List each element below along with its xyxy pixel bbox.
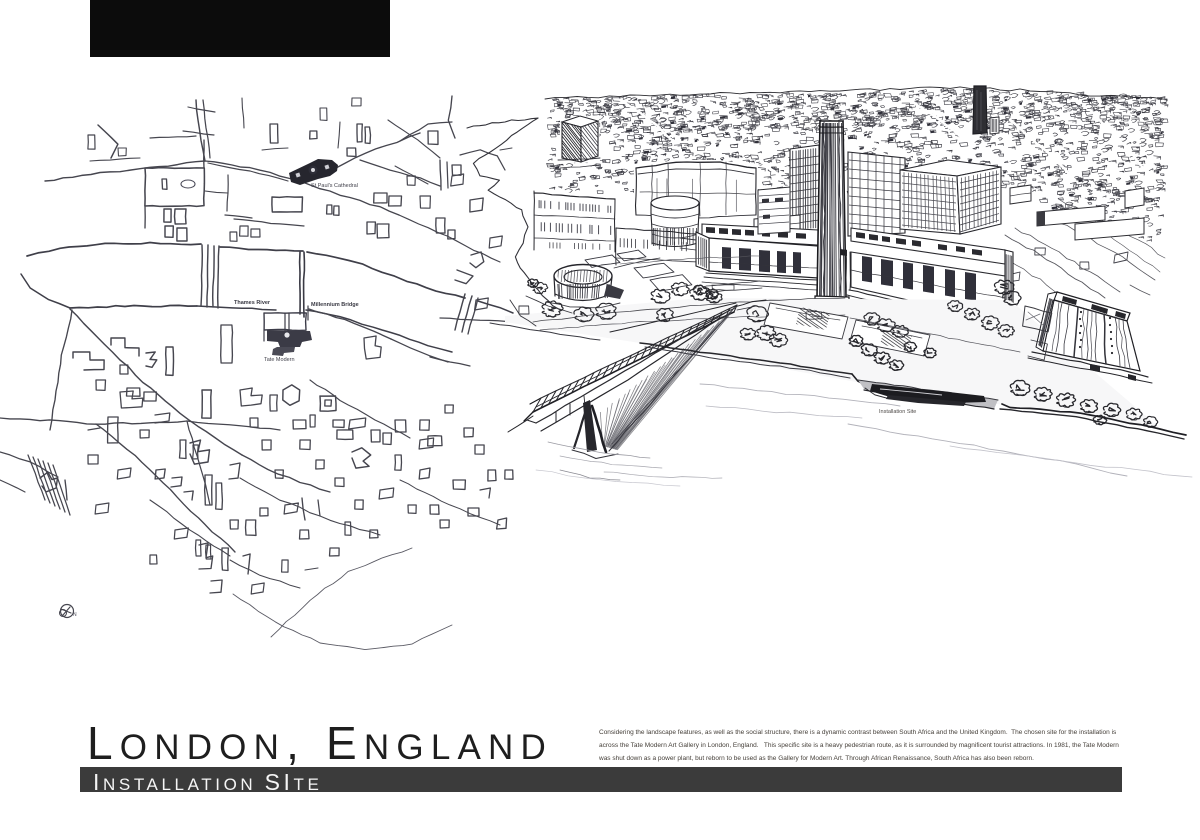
svg-text:Millennium Bridge: Millennium Bridge [311,302,359,308]
svg-text:St Paul's Cathedral: St Paul's Cathedral [311,183,358,189]
svg-text:Installation Site: Installation Site [879,409,916,415]
svg-text:N: N [73,612,77,618]
svg-text:Thames River: Thames River [234,300,271,306]
svg-text:Tate Modern: Tate Modern [264,357,295,363]
